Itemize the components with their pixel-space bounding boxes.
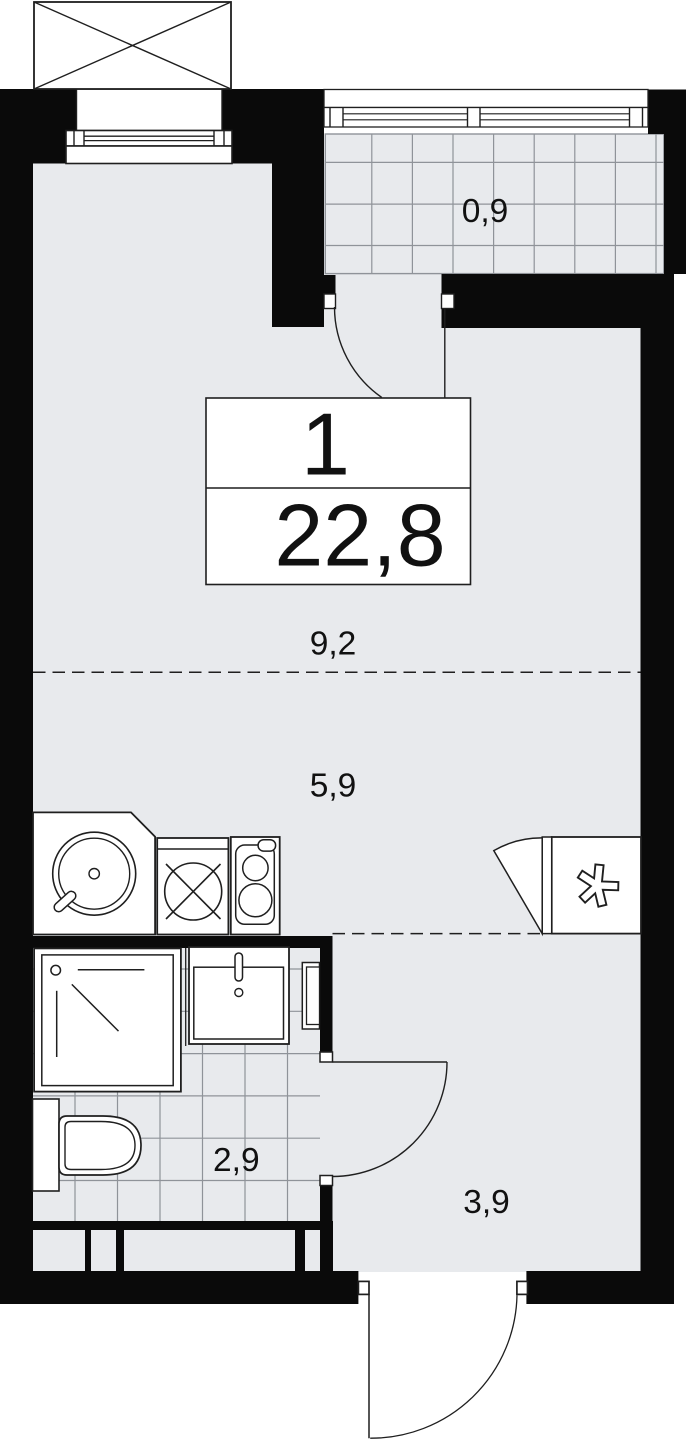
svg-text:22,8: 22,8	[274, 485, 445, 584]
svg-text:3,9: 3,9	[463, 1184, 510, 1221]
svg-text:2,9: 2,9	[213, 1142, 260, 1179]
svg-text:0,9: 0,9	[462, 193, 509, 230]
svg-text:5,9: 5,9	[310, 767, 357, 804]
svg-text:1: 1	[301, 395, 350, 494]
svg-text:9,2: 9,2	[310, 626, 357, 663]
